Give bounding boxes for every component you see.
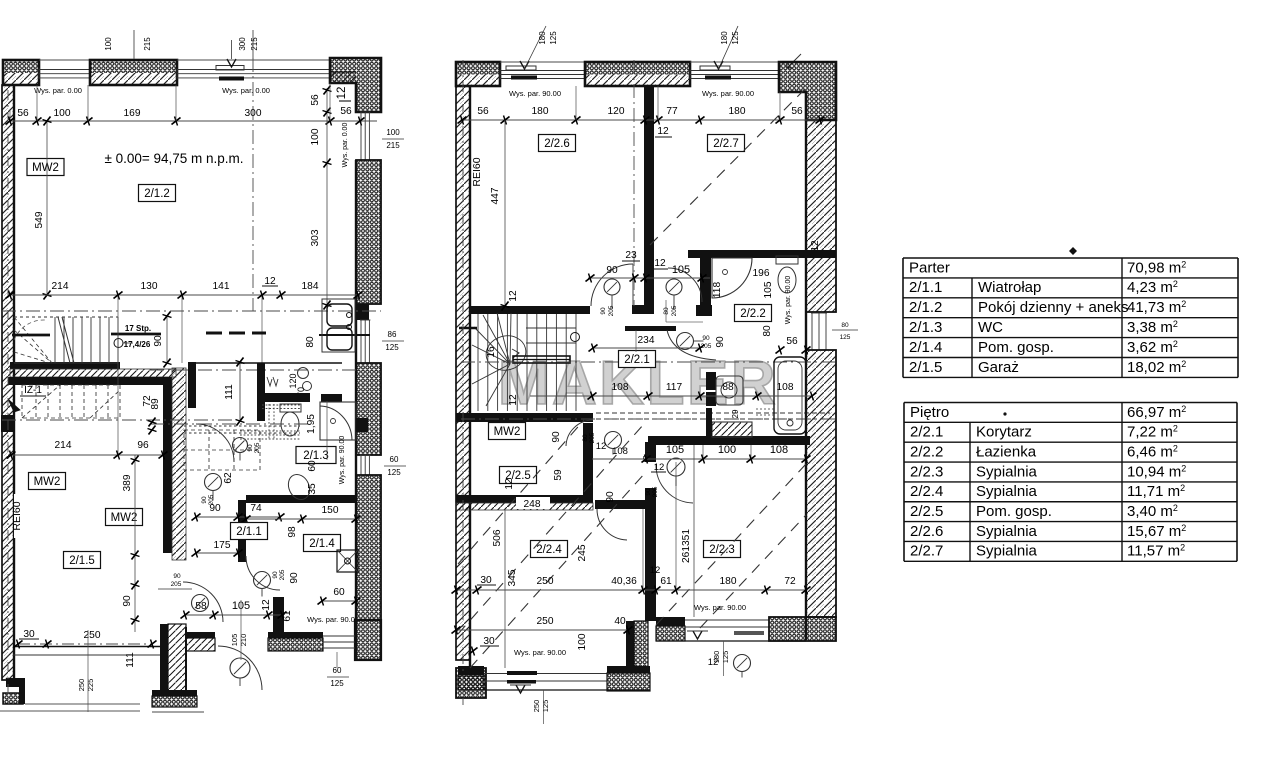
svg-text:100: 100 [718,444,736,456]
svg-text:4,23 m2: 4,23 m2 [1127,279,1178,296]
svg-text:111: 111 [125,652,136,668]
svg-text:89: 89 [150,398,161,410]
svg-text:2/2.6: 2/2.6 [910,523,943,540]
svg-text:2/2.4: 2/2.4 [536,544,562,556]
svg-text:108: 108 [770,444,788,456]
svg-text:29: 29 [731,409,740,418]
svg-text:100: 100 [54,108,71,119]
svg-text:345: 345 [507,569,518,586]
svg-text:56: 56 [340,106,352,117]
svg-text:300: 300 [238,37,247,51]
svg-text:98: 98 [287,526,298,538]
svg-text:MW2: MW2 [111,512,138,524]
svg-text:61: 61 [660,576,672,587]
svg-text:16: 16 [486,346,497,358]
svg-text:90: 90 [600,307,607,315]
svg-text:6,46 m2: 6,46 m2 [1127,443,1178,460]
svg-text:77: 77 [666,106,678,117]
svg-text:180: 180 [720,31,729,45]
svg-text:205: 205 [254,442,261,453]
svg-text:225: 225 [86,679,95,692]
svg-text:56: 56 [791,106,803,117]
svg-text:125: 125 [731,31,740,45]
svg-text:215: 215 [143,37,152,51]
svg-text:205: 205 [279,569,286,580]
svg-text:17 Stp.: 17 Stp. [125,324,151,333]
svg-text:90: 90 [209,503,221,514]
svg-text:196: 196 [753,268,770,279]
svg-text:175: 175 [214,540,231,551]
svg-text:41,73 m2: 41,73 m2 [1127,299,1186,316]
svg-text:11,57 m2: 11,57 m2 [1127,543,1185,560]
svg-text:2/2.7: 2/2.7 [713,138,739,150]
svg-text:120: 120 [288,373,298,388]
svg-text:2/2.2: 2/2.2 [740,308,766,320]
svg-text:70,98 m2: 70,98 m2 [1127,259,1186,276]
svg-text:90: 90 [289,572,300,584]
svg-text:90: 90 [153,335,164,347]
svg-text:118: 118 [712,282,723,299]
svg-text:66,97 m2: 66,97 m2 [1127,404,1186,421]
svg-text:125: 125 [549,31,558,45]
svg-text:2/2.3: 2/2.3 [910,463,943,480]
svg-text:12: 12 [261,599,272,611]
svg-text:30: 30 [480,575,492,586]
svg-text:23: 23 [625,250,637,261]
svg-text:300: 300 [245,108,262,119]
svg-text:WC: WC [978,319,1003,336]
svg-text:86: 86 [388,330,397,339]
svg-text:105: 105 [763,281,774,298]
svg-text:90: 90 [551,431,562,443]
svg-text:120: 120 [608,106,625,117]
svg-text:Sypialnia: Sypialnia [976,483,1038,500]
svg-text:250: 250 [537,616,554,627]
svg-text:90: 90 [605,491,616,503]
svg-text:± 0.00= 94,75 m n.p.m.: ± 0.00= 94,75 m n.p.m. [104,151,243,166]
svg-text:2/2.2: 2/2.2 [910,443,943,460]
svg-text:90: 90 [122,595,133,607]
svg-text:12: 12 [654,462,665,473]
svg-text:80: 80 [582,434,589,442]
svg-text:108: 108 [777,382,794,393]
svg-text:74: 74 [250,503,262,514]
svg-text:2/2.5: 2/2.5 [910,503,943,520]
svg-text:Wiatrołap: Wiatrołap [978,279,1041,296]
svg-text:17,4/26: 17,4/26 [124,340,151,349]
svg-text:125: 125 [541,700,550,713]
svg-text:90: 90 [247,444,254,452]
svg-text:REI60: REI60 [11,501,23,530]
svg-text:169: 169 [124,108,141,119]
svg-text:100: 100 [386,128,400,137]
svg-text:Wys. par. 0.00: Wys. par. 0.00 [222,86,270,95]
svg-text:90: 90 [715,336,726,348]
svg-text:250: 250 [537,576,554,587]
svg-text:96: 96 [137,440,149,451]
svg-text:12: 12 [596,441,607,452]
svg-text:35: 35 [307,483,318,495]
svg-text:Wys. par. 90.00: Wys. par. 90.00 [702,89,754,98]
svg-text:12: 12 [504,478,515,490]
svg-text:105: 105 [666,444,684,456]
svg-text:80: 80 [305,336,316,348]
svg-text:205: 205 [608,305,615,316]
svg-text:100: 100 [310,128,321,145]
svg-text:215: 215 [386,141,400,150]
svg-text:180: 180 [532,106,549,117]
svg-text:Garaż: Garaż [978,359,1019,376]
svg-text:Piętro: Piętro [910,404,949,421]
svg-text:90: 90 [606,265,618,276]
svg-text:12: 12 [657,126,669,137]
svg-text:72: 72 [784,576,796,587]
svg-text:18,02 m2: 18,02 m2 [1127,359,1186,376]
svg-text:2/2.4: 2/2.4 [910,483,943,500]
svg-text:2/1.5: 2/1.5 [69,555,95,567]
svg-text:117: 117 [666,382,683,393]
svg-text:125: 125 [387,468,401,477]
svg-text:1,95: 1,95 [306,414,317,434]
svg-text:210: 210 [239,634,248,647]
svg-text:12: 12 [650,565,661,576]
svg-text:60: 60 [333,587,345,598]
svg-text:Wys. par. 0.00: Wys. par. 0.00 [34,86,82,95]
svg-text:Sypialnia: Sypialnia [976,463,1038,480]
svg-text:MW2: MW2 [32,162,59,174]
svg-text:2/2.6: 2/2.6 [544,138,570,150]
svg-text:Wys. par. 90.00: Wys. par. 90.00 [339,436,346,485]
svg-text:30: 30 [23,629,35,640]
svg-text:3,40 m2: 3,40 m2 [1127,503,1178,520]
svg-text:Wys. par. 90.0: Wys. par. 90.0 [307,615,355,624]
svg-text:IZ-1: IZ-1 [24,385,42,396]
svg-text:Pom. gosp.: Pom. gosp. [976,503,1052,520]
svg-text:40,36: 40,36 [611,576,637,587]
svg-text:5: 5 [643,455,648,464]
svg-text:2/2.7: 2/2.7 [910,543,943,560]
svg-text:56: 56 [477,106,489,117]
svg-text:447: 447 [490,187,501,204]
svg-text:105: 105 [672,264,690,276]
svg-text:506: 506 [492,529,503,546]
svg-text:2/2.1: 2/2.1 [624,354,650,366]
svg-text:234: 234 [638,335,655,346]
svg-text:61: 61 [282,610,293,622]
svg-text:130: 130 [141,281,158,292]
svg-text:30: 30 [483,636,495,647]
svg-text:80: 80 [663,307,670,315]
svg-text:184: 184 [302,281,319,292]
svg-text:2/1.3: 2/1.3 [909,319,942,336]
svg-text:180: 180 [720,576,737,587]
svg-text:15,67 m2: 15,67 m2 [1127,523,1186,540]
svg-text:Łazienka: Łazienka [976,443,1037,460]
svg-text:389: 389 [122,474,133,491]
svg-text:60: 60 [390,455,399,464]
svg-text:11,71 m2: 11,71 m2 [1127,483,1185,500]
svg-text:2/2.1: 2/2.1 [910,424,943,441]
svg-text:80: 80 [762,325,773,337]
svg-text:Wys. par. 90.00: Wys. par. 90.00 [785,276,792,325]
svg-text:60: 60 [307,460,318,472]
svg-text:180: 180 [538,31,547,45]
svg-text:2/1.2: 2/1.2 [909,299,942,316]
svg-text:303: 303 [310,229,321,246]
svg-text:Pom. gosp.: Pom. gosp. [978,339,1054,356]
svg-text:12: 12 [810,240,821,252]
svg-text:2/1.1: 2/1.1 [909,279,942,296]
svg-text:12: 12 [708,657,719,668]
svg-text:100: 100 [104,37,113,51]
svg-text:125: 125 [721,651,730,664]
svg-text:58: 58 [195,601,207,612]
svg-text:80: 80 [841,322,849,329]
svg-text:90: 90 [173,573,181,580]
svg-text:12: 12 [508,394,519,406]
svg-text:Sypialnia: Sypialnia [976,543,1038,560]
svg-text:125: 125 [330,679,344,688]
svg-text:Wys. par. 90.00: Wys. par. 90.00 [509,89,561,98]
svg-text:62: 62 [223,472,234,484]
svg-text:Wys. par. 90.00: Wys. par. 90.00 [694,603,746,612]
svg-text:40: 40 [614,616,626,627]
svg-text:12: 12 [264,276,276,287]
svg-text:248: 248 [524,499,541,510]
svg-text:12: 12 [654,258,666,269]
svg-text:3,38 m2: 3,38 m2 [1127,319,1178,336]
svg-text:2/1.2: 2/1.2 [144,188,170,200]
svg-text:90: 90 [272,571,279,579]
svg-text:Sypialnia: Sypialnia [976,523,1038,540]
svg-text:56: 56 [786,336,798,347]
svg-text:2/1.4: 2/1.4 [909,339,942,356]
svg-text:MW2: MW2 [34,476,61,488]
svg-text:250: 250 [532,700,541,713]
svg-text:205: 205 [171,581,182,588]
svg-text:125: 125 [840,334,851,341]
svg-text:90: 90 [702,335,710,342]
svg-text:125: 125 [385,343,399,352]
svg-text:111: 111 [224,384,235,400]
svg-text:10,94 m2: 10,94 m2 [1127,463,1186,480]
svg-text:59: 59 [553,469,564,481]
svg-text:205: 205 [671,305,678,316]
svg-text:214: 214 [52,281,69,292]
svg-text:7,22 m2: 7,22 m2 [1127,424,1178,441]
svg-text:250: 250 [77,679,86,692]
svg-text:214: 214 [55,440,72,451]
svg-text:205: 205 [652,486,659,497]
svg-text:12: 12 [508,290,519,302]
svg-text:261351: 261351 [681,529,692,563]
svg-text:549: 549 [34,211,45,228]
svg-text:108: 108 [612,446,628,457]
svg-text:90: 90 [201,496,208,504]
svg-text:REI60: REI60 [471,157,483,186]
svg-text:215: 215 [250,37,259,51]
svg-text:2/1.1: 2/1.1 [236,526,262,538]
svg-text:250: 250 [84,630,101,641]
svg-text:108: 108 [612,382,629,393]
svg-text:245: 245 [577,544,588,561]
svg-text:MW2: MW2 [494,426,521,438]
svg-text:Korytarz: Korytarz [976,424,1032,441]
svg-text:141: 141 [213,281,230,292]
svg-text:12: 12 [336,87,348,100]
svg-text:56: 56 [310,94,321,106]
svg-text:Wys. par. 0.00: Wys. par. 0.00 [342,123,349,168]
svg-text:Wys. par. 90.00: Wys. par. 90.00 [514,648,566,657]
svg-text:Parter: Parter [909,259,950,276]
svg-text:3,62 m2: 3,62 m2 [1127,339,1178,356]
svg-text:2/1.5: 2/1.5 [909,359,942,376]
svg-text:88: 88 [722,382,734,393]
svg-text:105: 105 [230,634,239,647]
svg-text:100: 100 [577,633,588,650]
svg-text:150: 150 [322,505,339,516]
svg-text:90: 90 [645,488,652,496]
svg-text:56: 56 [17,108,29,119]
svg-text:2/1.4: 2/1.4 [309,538,335,550]
svg-text:180: 180 [729,106,746,117]
svg-text:Pokój dzienny + aneks: Pokój dzienny + aneks [978,299,1129,316]
